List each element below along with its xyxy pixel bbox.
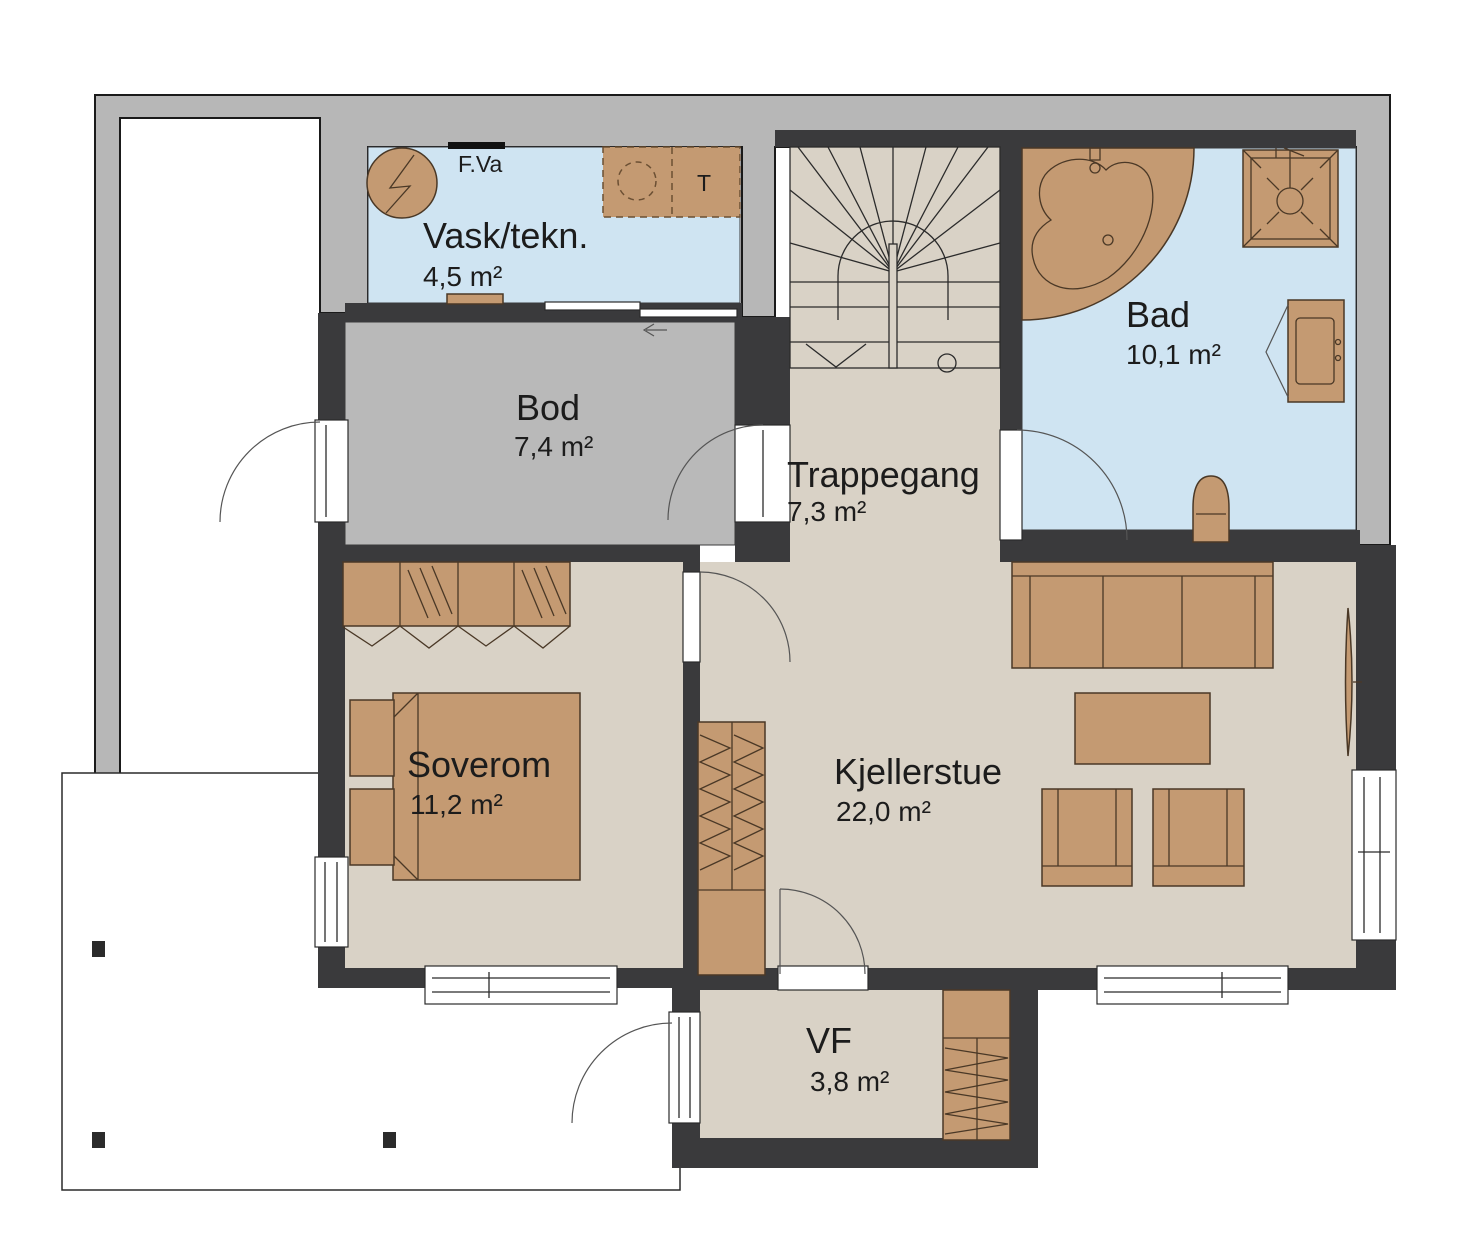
bod-exterior-door-swing bbox=[220, 422, 320, 522]
bad-door bbox=[1000, 430, 1022, 540]
vask-sliding-door bbox=[545, 302, 640, 310]
room-area-vf: 3,8 m² bbox=[810, 1066, 889, 1097]
room-label-bad: Bad bbox=[1126, 294, 1190, 335]
soverom-window-left bbox=[315, 857, 348, 947]
armchair bbox=[1153, 789, 1244, 886]
nightstand bbox=[350, 700, 394, 776]
toilet bbox=[1193, 476, 1229, 542]
soverom-door bbox=[683, 572, 700, 662]
vf-inner-door bbox=[778, 966, 868, 990]
room-area-bad: 10,1 m² bbox=[1126, 339, 1221, 370]
room-area-trappegang: 7,3 m² bbox=[787, 496, 866, 527]
washer-dryer-unit bbox=[603, 147, 740, 217]
soverom-furniture bbox=[343, 562, 580, 880]
armchair bbox=[1042, 789, 1132, 886]
room-label-bod: Bod bbox=[516, 387, 580, 428]
stair-divider-wall bbox=[889, 244, 897, 368]
vf-furniture bbox=[943, 990, 1010, 1140]
room-label-trappegang: Trappegang bbox=[787, 454, 980, 495]
terrace-post bbox=[92, 941, 105, 957]
floor-waste-label: F.Va bbox=[458, 151, 503, 177]
water-heater-icon bbox=[367, 148, 437, 218]
room-area-vask: 4,5 m² bbox=[423, 261, 502, 292]
room-label-vask: Vask/tekn. bbox=[423, 215, 588, 256]
room-area-bod: 7,4 m² bbox=[514, 431, 593, 462]
bod-exterior-door bbox=[315, 420, 348, 522]
dryer-label: T bbox=[697, 170, 711, 196]
floor-plan-drawing: Vask/tekn. 4,5 m² Bod 7,4 m² Trappegang … bbox=[0, 0, 1466, 1250]
kjellerstue-window-bottom bbox=[1097, 966, 1288, 1004]
vf-entry-door bbox=[669, 1012, 700, 1123]
soverom-window-bottom bbox=[425, 966, 617, 1004]
room-label-kjellerstue: Kjellerstue bbox=[834, 751, 1002, 792]
bed bbox=[393, 693, 580, 880]
room-area-kjellerstue: 22,0 m² bbox=[836, 796, 931, 827]
room-label-soverom: Soverom bbox=[407, 744, 551, 785]
terrace-post bbox=[92, 1132, 105, 1148]
nightstand bbox=[350, 789, 394, 865]
floor-plan-page: Vask/tekn. 4,5 m² Bod 7,4 m² Trappegang … bbox=[0, 0, 1466, 1250]
sofa bbox=[1012, 562, 1273, 668]
room-label-vf: VF bbox=[806, 1020, 852, 1061]
bench bbox=[447, 294, 503, 304]
terrace-post bbox=[383, 1132, 396, 1148]
kjellerstue-window-right bbox=[1352, 770, 1396, 940]
coffee-table bbox=[1075, 693, 1210, 764]
room-area-soverom: 11,2 m² bbox=[410, 789, 503, 820]
vask-window-marker bbox=[448, 142, 505, 149]
vask-sliding-door bbox=[640, 309, 737, 317]
